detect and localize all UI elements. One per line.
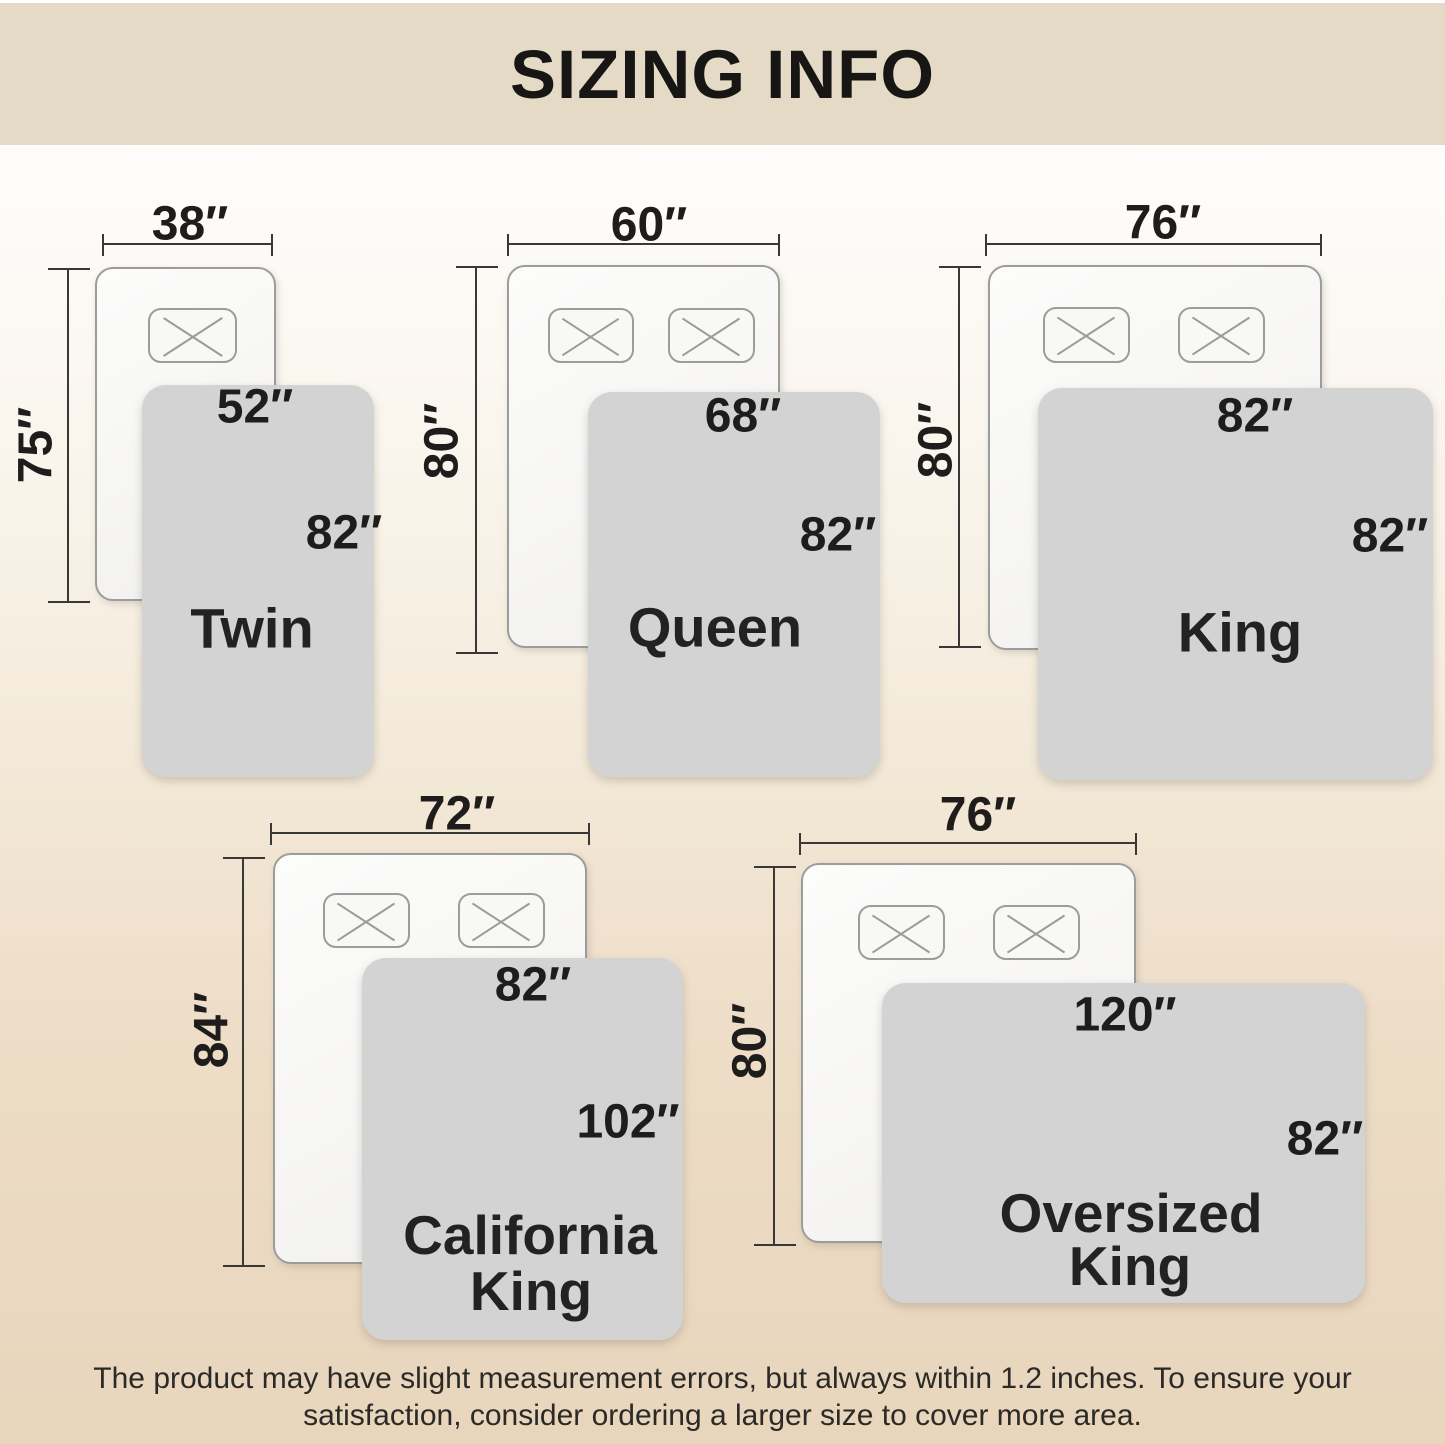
bed-length-label: 80″: [723, 1003, 778, 1079]
size-name: King: [1069, 1234, 1191, 1298]
pillow: [993, 905, 1080, 960]
width-dimension-line: [799, 842, 1137, 844]
footer-note-line: satisfaction, consider ordering a larger…: [0, 1397, 1445, 1434]
footer-note-line: The product may have slight measurement …: [0, 1360, 1445, 1397]
footer-note: The product may have slight measurement …: [0, 1360, 1445, 1434]
blanket-length-label: 82″: [1287, 1112, 1363, 1167]
bed-width-label: 76″: [940, 788, 1016, 843]
pillow: [858, 905, 945, 960]
pillow-x-icon: [860, 907, 943, 958]
size-diagram-oversized-king: 76″ 80″ 120″ 82″ Oversized King: [0, 0, 1445, 1444]
sizing-info-graphic: SIZING INFO 38″ 75″ 52″ 82″ Twin 60″ 80″: [0, 0, 1445, 1444]
pillow-x-icon: [995, 907, 1078, 958]
blanket-width-label: 120″: [1073, 988, 1176, 1043]
